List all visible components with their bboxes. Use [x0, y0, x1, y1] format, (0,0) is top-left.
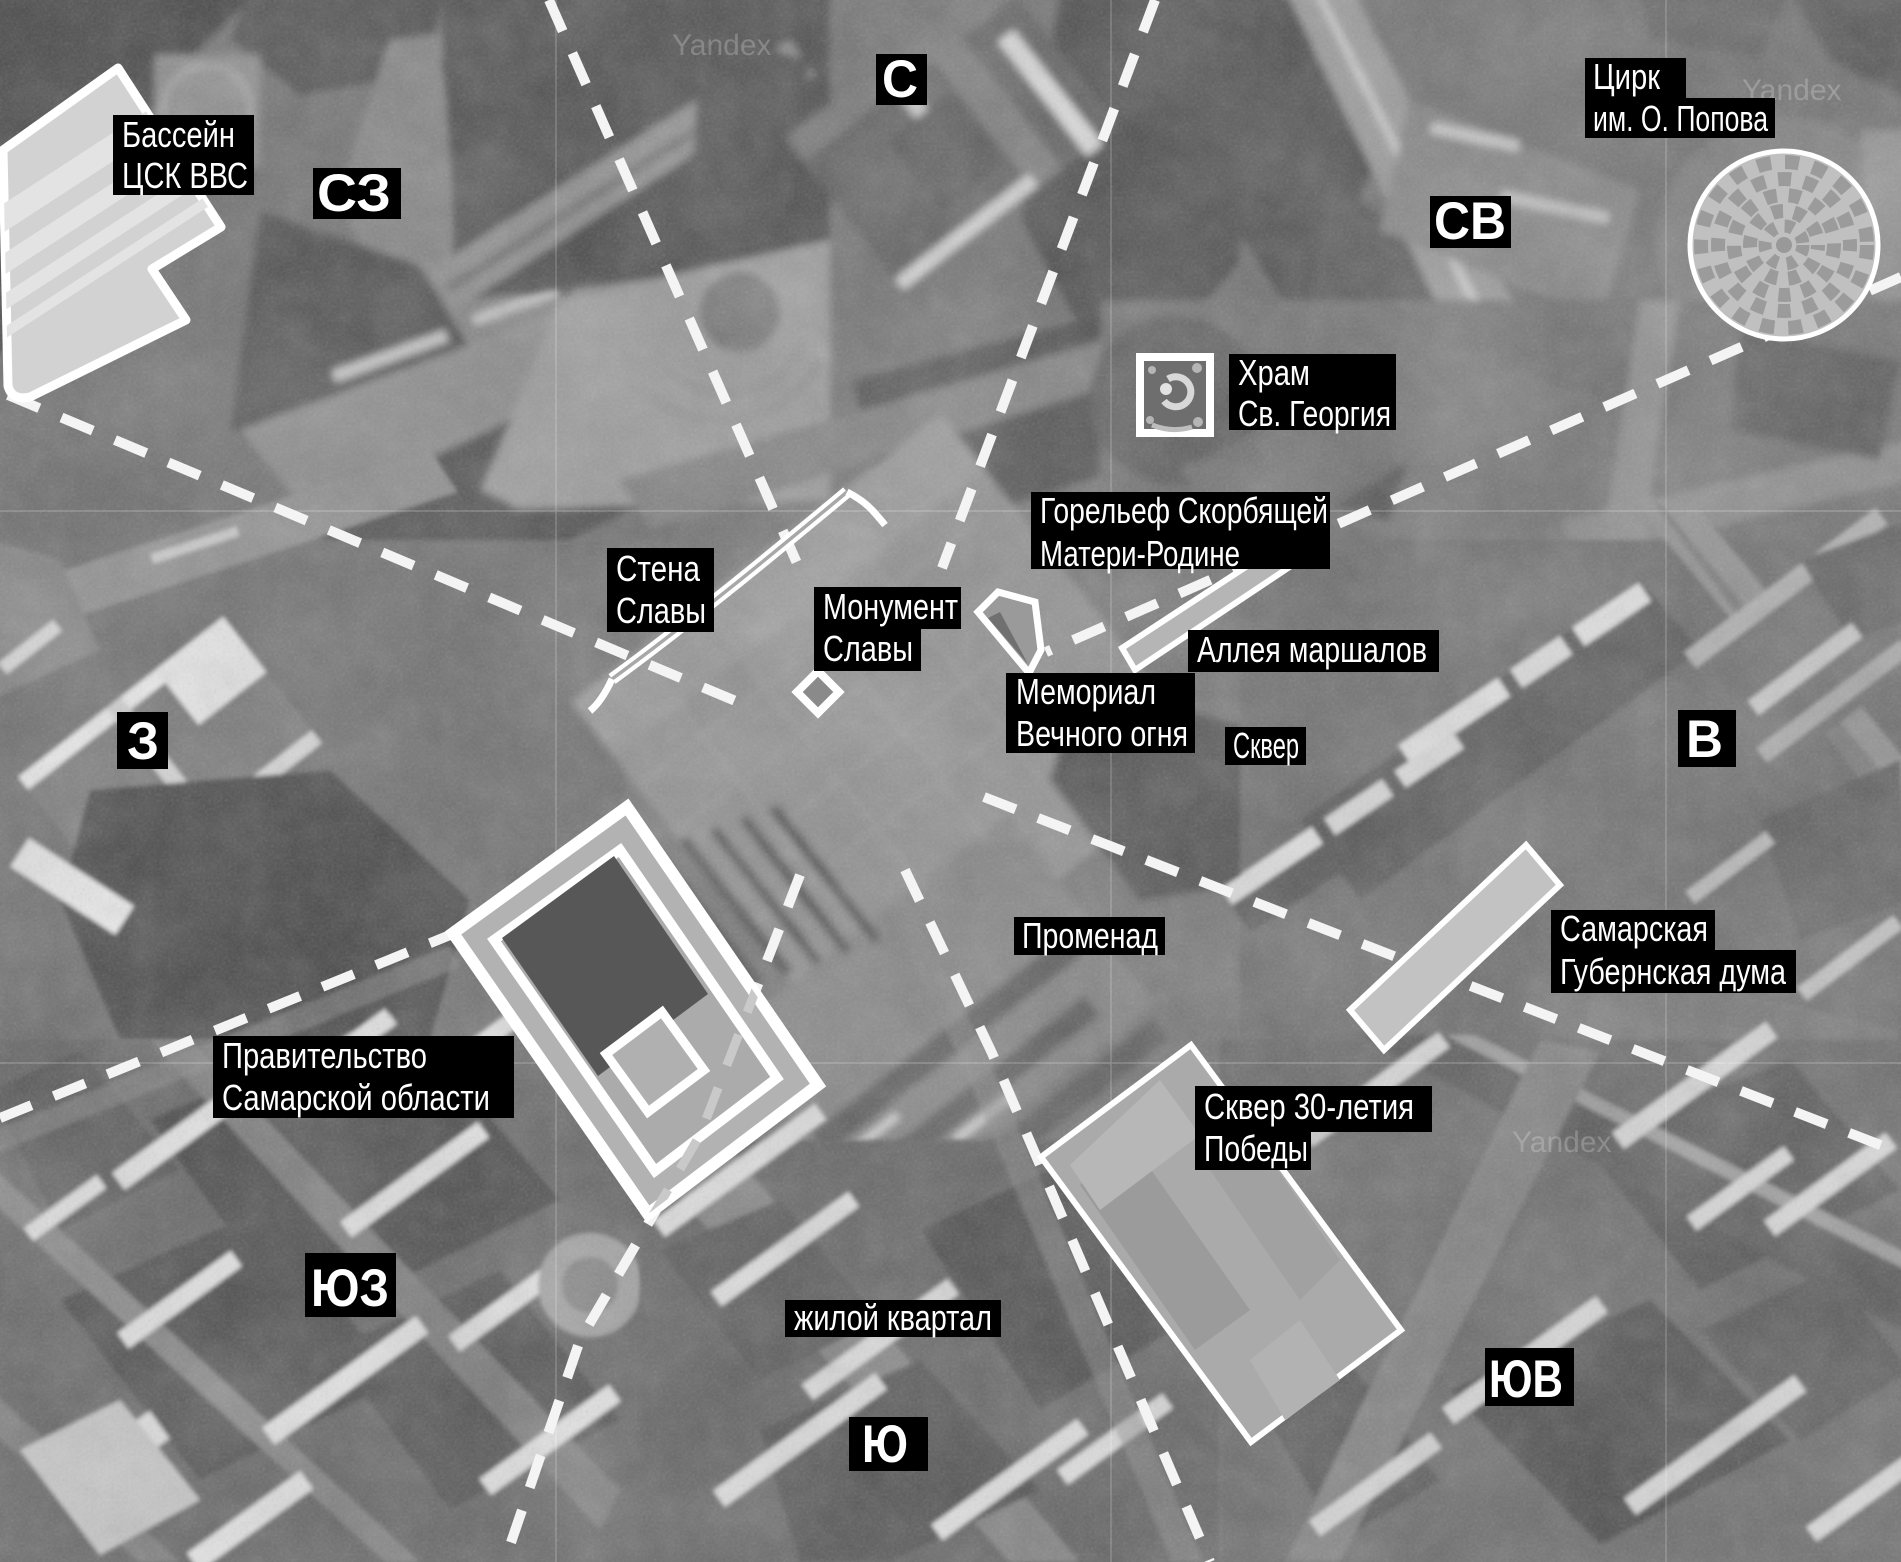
svg-text:Сквер 30-летия: Сквер 30-летия — [1204, 1086, 1414, 1127]
svg-text:Губернская дума: Губернская дума — [1560, 951, 1787, 992]
svg-text:Аллея маршалов: Аллея маршалов — [1197, 629, 1427, 670]
svg-text:Бассейн: Бассейн — [122, 114, 235, 155]
svg-text:С: С — [882, 50, 918, 109]
svg-text:Ю: Ю — [862, 1415, 908, 1474]
svg-text:Цирк: Цирк — [1593, 56, 1660, 97]
svg-text:ЮВ: ЮВ — [1489, 1350, 1563, 1409]
svg-text:Yandex: Yandex — [1512, 1126, 1612, 1159]
svg-text:Правительство: Правительство — [222, 1035, 427, 1076]
svg-text:ЮЗ: ЮЗ — [311, 1259, 389, 1318]
svg-text:СВ: СВ — [1434, 192, 1506, 251]
svg-text:Сквер: Сквер — [1233, 725, 1299, 766]
svg-text:Победы: Победы — [1204, 1128, 1308, 1169]
svg-text:Монумент: Монумент — [823, 586, 958, 627]
svg-text:Славы: Славы — [823, 628, 913, 669]
svg-text:В: В — [1686, 710, 1723, 769]
svg-text:им. О. Попова: им. О. Попова — [1593, 98, 1769, 139]
svg-text:Променад: Променад — [1022, 915, 1158, 956]
svg-text:З: З — [127, 712, 159, 771]
svg-text:Горельеф Скорбящей: Горельеф Скорбящей — [1040, 490, 1328, 531]
svg-text:ЦСК ВВС: ЦСК ВВС — [122, 155, 248, 196]
svg-text:Матери-Родине: Матери-Родине — [1040, 533, 1240, 574]
svg-text:Самарской области: Самарской области — [222, 1077, 490, 1118]
svg-text:Yandex: Yandex — [672, 29, 772, 62]
svg-text:жилой квартал: жилой квартал — [794, 1297, 992, 1338]
svg-text:СЗ: СЗ — [317, 164, 391, 223]
svg-text:Мемориал: Мемориал — [1016, 671, 1156, 712]
svg-text:Вечного огня: Вечного огня — [1016, 713, 1188, 754]
svg-text:Самарская: Самарская — [1560, 908, 1708, 949]
svg-text:Славы: Славы — [616, 590, 706, 631]
svg-text:Стена: Стена — [616, 548, 701, 589]
svg-text:Храм: Храм — [1238, 352, 1310, 393]
svg-text:Св. Георгия: Св. Георгия — [1238, 393, 1391, 434]
